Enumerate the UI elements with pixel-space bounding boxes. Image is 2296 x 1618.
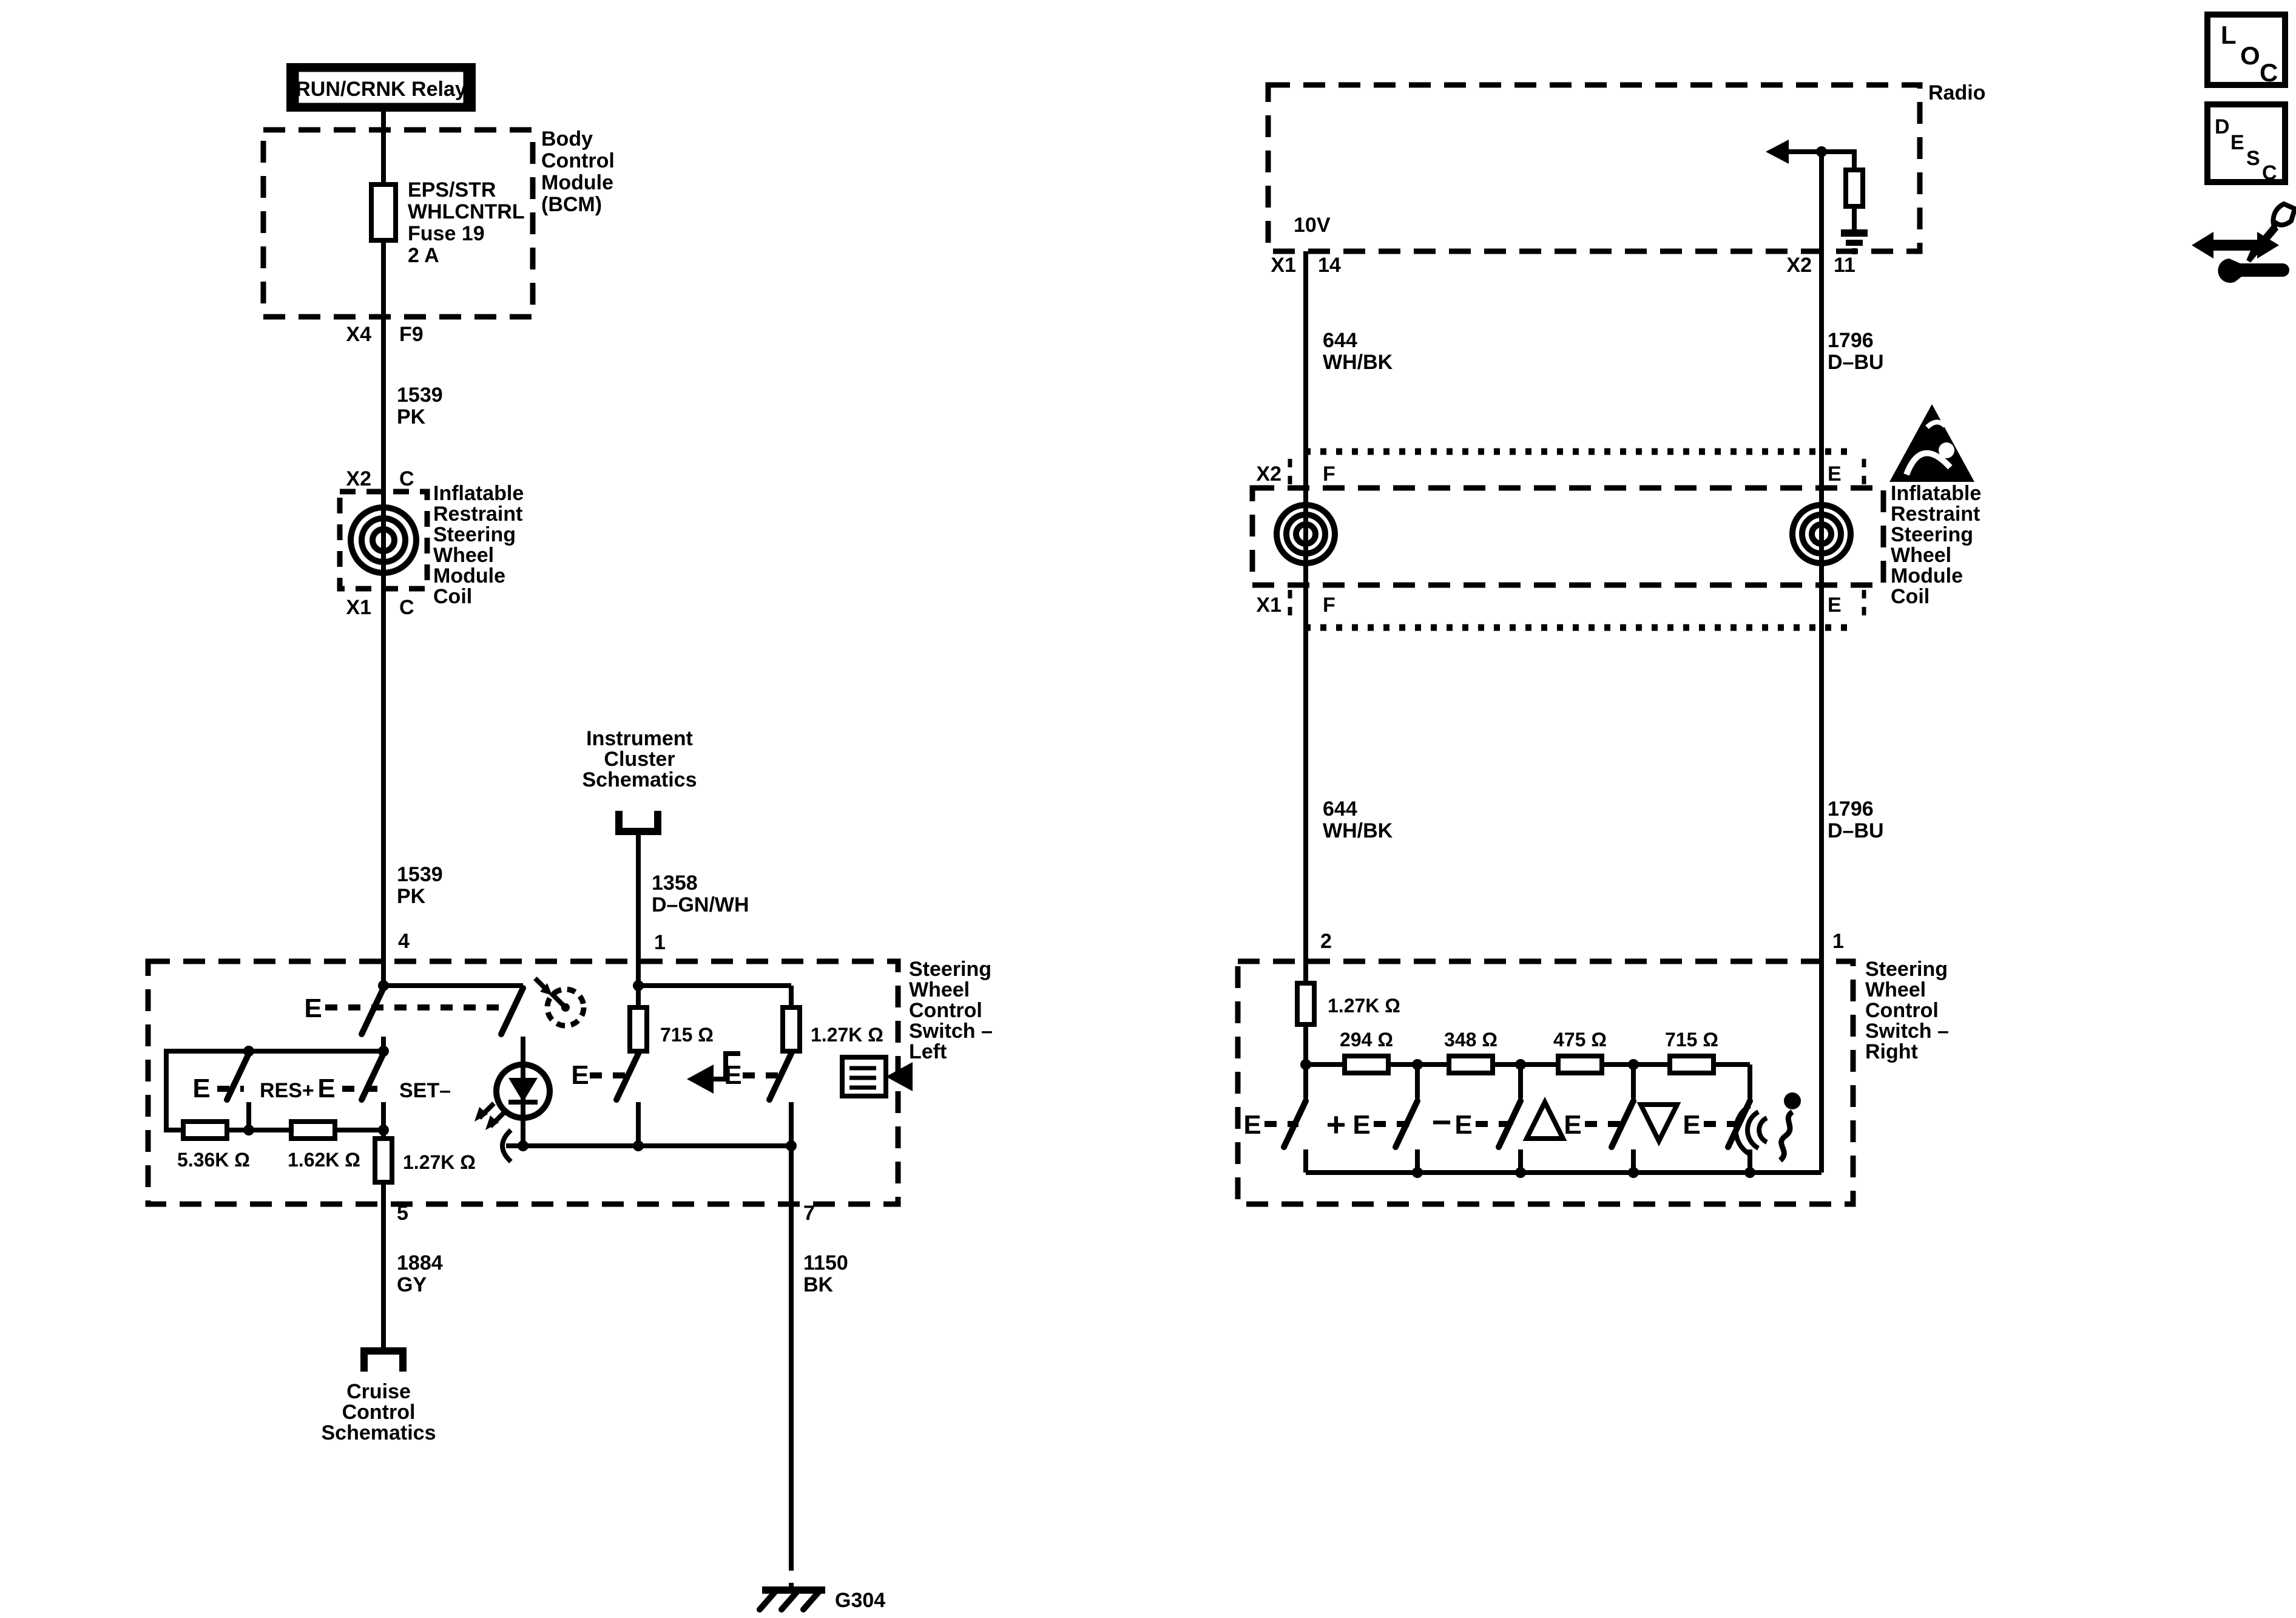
junction-dot <box>1515 1059 1526 1070</box>
resistor <box>291 1122 335 1139</box>
airbag-warning-icon <box>1889 404 1974 482</box>
junction-dot <box>378 1046 389 1057</box>
coil-label: Inflatable <box>433 482 524 505</box>
bcm-label: Module <box>541 171 613 194</box>
resistor <box>1449 1056 1493 1073</box>
loc-letter: C <box>2260 58 2278 87</box>
junction-dot <box>1628 1059 1639 1070</box>
resistor <box>630 1007 647 1051</box>
pin-label: 11 <box>1834 254 1855 277</box>
resistor <box>1846 170 1863 206</box>
bcm-label: Control <box>541 149 615 172</box>
offpage-ref-label: Schematics <box>582 768 697 791</box>
junction-dot <box>1816 146 1827 157</box>
right-switch-box: Steering Wheel Control Switch – Right 1.… <box>1238 958 1949 1204</box>
wiring-diagram: RUN/CRNK Relay Body Control Module (BCM)… <box>0 0 2296 1618</box>
voice-waves <box>1736 1106 1767 1154</box>
resistor-value: 715 Ω <box>1665 1029 1718 1051</box>
desc-letter: D <box>2215 115 2230 138</box>
pin-label: 2 <box>1320 930 1332 953</box>
resistor-value: 715 Ω <box>660 1024 714 1046</box>
resistor-value: 5.36K Ω <box>177 1149 250 1171</box>
instrument-cluster-ref: Instrument Cluster Schematics 1358 D–GN/… <box>582 727 749 961</box>
wire-label: WH/BK <box>1323 351 1393 374</box>
triangle-up-icon <box>1527 1102 1563 1139</box>
loc-box-icon: L O C <box>2207 15 2285 87</box>
ground-label: G304 <box>835 1589 885 1612</box>
wire-label: D–BU <box>1828 351 1884 374</box>
resistor <box>183 1122 227 1139</box>
wrench-arrow-icon <box>2192 204 2295 283</box>
coil-label: Module <box>433 564 505 587</box>
volume-up-icon: + <box>1326 1105 1346 1143</box>
box-label: Control <box>1865 999 1939 1022</box>
coil-label: Steering <box>1891 523 1973 546</box>
ground-section: 7 1150 BK G304 <box>760 1146 885 1612</box>
voice-command-icon <box>1736 1092 1801 1160</box>
relay-label: RUN/CRNK Relay <box>295 78 467 101</box>
wire-label: 1796 <box>1828 797 1874 821</box>
switch-e-label: E <box>1243 1110 1261 1140</box>
signal-arrowhead <box>1766 140 1789 164</box>
box-label: Control <box>909 999 982 1022</box>
pin-label: C <box>399 467 414 490</box>
pin-label: 1 <box>654 931 666 954</box>
box-label: Wheel <box>1865 978 1926 1001</box>
switch-e-label: E <box>304 993 322 1023</box>
fuse-label: WHLCNTRL <box>408 200 525 223</box>
wire-label: 1358 <box>652 872 698 895</box>
wire-label: PK <box>397 885 426 908</box>
coil-label: Steering <box>433 523 516 546</box>
switch-e-label: E <box>571 1060 589 1090</box>
set-minus-label: SET– <box>399 1079 451 1102</box>
switch-e-label: E <box>1564 1110 1581 1140</box>
volume-down-icon: − <box>1432 1103 1452 1141</box>
wire-label: WH/BK <box>1323 819 1393 842</box>
seek-triangle <box>687 1065 714 1094</box>
junction-dot <box>1515 1167 1526 1178</box>
coil-label: Inflatable <box>1891 482 1981 505</box>
connector-label: X2 <box>1256 462 1281 486</box>
wire-label: 644 <box>1323 329 1357 352</box>
coil-label: Wheel <box>433 544 494 567</box>
wire-label: GY <box>397 1273 427 1296</box>
switch-blade <box>227 1054 249 1100</box>
resistor-value: 1.62K Ω <box>288 1149 360 1171</box>
resistor <box>1297 983 1314 1024</box>
wire-label: 644 <box>1323 797 1357 821</box>
junction-dot <box>1412 1059 1423 1070</box>
wire-label: 1796 <box>1828 329 1874 352</box>
box-label: Switch – <box>1865 1020 1949 1043</box>
fuse-label: Fuse 19 <box>408 222 485 245</box>
resistor-value: 348 Ω <box>1444 1029 1497 1051</box>
connector-label: X2 <box>346 467 371 490</box>
desc-box-icon: D E S C <box>2207 104 2285 184</box>
coil-label: Wheel <box>1891 544 1951 567</box>
loc-letter: L <box>2221 21 2237 49</box>
wire-label: 1150 <box>803 1251 848 1274</box>
wrench-outline <box>2249 204 2295 261</box>
supply-voltage-label: 10V <box>1294 214 1331 237</box>
wire <box>1306 1149 1750 1173</box>
wire-label: D–GN/WH <box>652 893 749 916</box>
resistor-value: 1.27K Ω <box>1328 995 1400 1017</box>
desc-letter: C <box>2262 161 2277 184</box>
pin-label: 7 <box>803 1202 815 1225</box>
pin-label: C <box>399 596 414 619</box>
resistor-value: 475 Ω <box>1553 1029 1607 1051</box>
box-label: Steering <box>909 958 991 981</box>
offpage-ref-label: Control <box>342 1401 416 1424</box>
junction-dot <box>633 980 644 991</box>
junction-dot <box>378 1125 389 1136</box>
connector-label: X2 <box>1786 254 1812 277</box>
offpage-ref-label: Schematics <box>322 1421 436 1444</box>
pin-label: 14 <box>1318 254 1341 277</box>
wire-label: BK <box>803 1273 834 1296</box>
led-diode <box>508 1078 538 1102</box>
source-menu-icon <box>842 1057 913 1096</box>
box-label: Steering <box>1865 958 1948 981</box>
coil-label: Module <box>1891 564 1963 587</box>
junction-dot <box>1628 1167 1639 1178</box>
switch-e-label: E <box>192 1074 210 1103</box>
switch-blade <box>501 988 523 1034</box>
connector-label: X1 <box>1256 594 1281 617</box>
fuse-icon <box>371 184 396 240</box>
junction-dot <box>243 1125 254 1136</box>
coil-label: Restraint <box>433 503 522 526</box>
radio-label: Radio <box>1928 81 1985 104</box>
pin-label: E <box>1828 594 1842 617</box>
direction-arrowhead-left <box>2192 232 2213 259</box>
resistor <box>1670 1056 1714 1073</box>
pin-label: 1 <box>1832 930 1844 953</box>
speedometer-hub <box>561 1003 570 1012</box>
warning-triangle <box>1889 404 1974 482</box>
pin-label: F <box>1323 462 1335 486</box>
connector-label: X1 <box>346 596 371 619</box>
coil-dashed-box <box>1252 488 1883 585</box>
pin-label: 4 <box>398 930 410 953</box>
junction-dot <box>1412 1167 1423 1178</box>
wire-label: PK <box>397 405 426 428</box>
junction-dot <box>378 980 389 991</box>
cruise-ref-section: 5 1884 GY Cruise Control Schematics <box>322 1202 443 1444</box>
resistor <box>1345 1056 1388 1073</box>
junction-dot <box>518 1140 528 1151</box>
offpage-connector-icon <box>619 811 658 831</box>
switch-e-label: E <box>317 1074 335 1103</box>
desc-letter: S <box>2246 147 2260 170</box>
switch-e-label: E <box>1352 1110 1370 1140</box>
junction-dot <box>1300 1059 1311 1070</box>
left-switch-box: Steering Wheel Control Switch – Left E E… <box>148 833 993 1204</box>
offpage-ref-label: Cruise <box>346 1380 411 1403</box>
box-label: Switch – <box>909 1020 993 1043</box>
junction-dot <box>1744 1167 1755 1178</box>
box-label: Left <box>909 1040 947 1063</box>
pin-label: 5 <box>397 1202 408 1225</box>
bcm-label: (BCM) <box>541 193 602 216</box>
coil-label: Coil <box>1891 585 1930 608</box>
wire-label: 1539 <box>397 384 443 407</box>
pin-label: F9 <box>399 323 424 346</box>
resistor <box>783 1007 800 1051</box>
resistor-value: 294 Ω <box>1340 1029 1393 1051</box>
switch-e-label: E <box>1683 1110 1700 1140</box>
box-label: Right <box>1865 1040 1918 1063</box>
resistor-value: 1.27K Ω <box>811 1024 883 1046</box>
pin-label: F <box>1323 594 1335 617</box>
wire-label: 1539 <box>397 863 443 886</box>
switch-blade <box>362 1054 383 1100</box>
resistor <box>375 1139 392 1182</box>
loc-letter: O <box>2240 41 2260 70</box>
bcm-label: Body <box>541 127 593 151</box>
resistor-value: 1.27K Ω <box>403 1151 476 1173</box>
resistor <box>1558 1056 1602 1073</box>
coil-label: Coil <box>433 585 472 608</box>
switch-e-label: E <box>724 1060 741 1090</box>
res-plus-label: RES+ <box>260 1079 314 1102</box>
voice-body <box>1780 1112 1792 1160</box>
switch-blade <box>362 988 383 1034</box>
desc-letter: E <box>2230 131 2244 154</box>
wire-label: D–BU <box>1828 819 1884 842</box>
legend-icons: L O C D E S C <box>2192 15 2295 283</box>
fuse-label: EPS/STR <box>408 178 496 201</box>
fuse-label: 2 A <box>408 244 439 267</box>
ground-icon <box>760 1590 825 1610</box>
offpage-connector-icon <box>364 1351 403 1372</box>
wire-label: 1884 <box>397 1251 443 1274</box>
connector-label: X1 <box>1271 254 1296 277</box>
switch-e-label: E <box>1454 1110 1472 1140</box>
box-label: Wheel <box>909 978 970 1001</box>
connector-label: X4 <box>346 323 371 346</box>
triangle-down-icon <box>1641 1105 1677 1141</box>
connector-ticks <box>1290 459 1864 621</box>
coil-label: Restraint <box>1891 503 1980 526</box>
junction-dot <box>633 1140 644 1151</box>
offpage-ref-label: Cluster <box>604 748 675 771</box>
led-indicator-icon <box>474 1065 550 1130</box>
speedometer-icon <box>535 978 584 1026</box>
junction-dot <box>243 1046 254 1057</box>
wrench-solid <box>2218 259 2289 283</box>
right-coil-section: X2 F E X1 F E Inflatable Restraint Steer… <box>1252 404 1981 953</box>
offpage-ref-label: Instrument <box>586 727 693 750</box>
voice-head <box>1784 1092 1801 1109</box>
pin-label: E <box>1828 462 1842 486</box>
left-coil-section: 1539 PK X2 C Inflatable Restraint Steeri… <box>340 384 524 953</box>
